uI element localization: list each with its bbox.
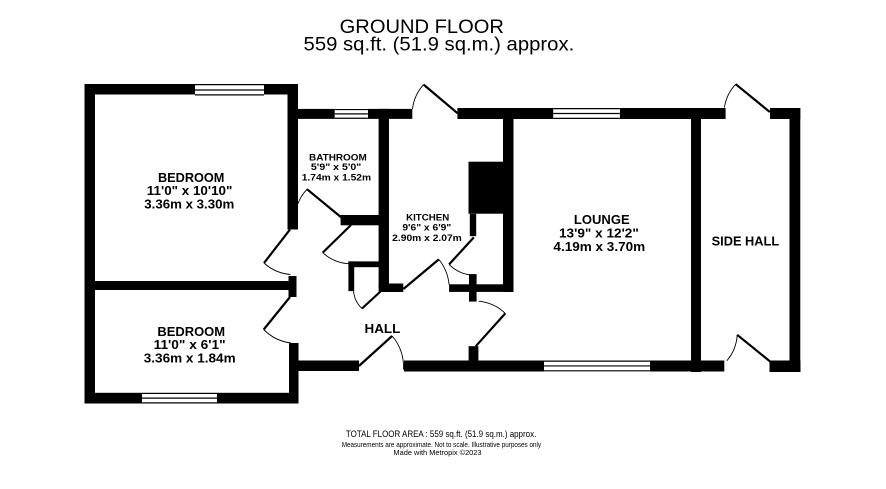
svg-text:1.74m x 1.52m: 1.74m x 1.52m bbox=[302, 173, 371, 184]
svg-text:4.19m x 3.70m: 4.19m x 3.70m bbox=[553, 239, 645, 254]
svg-text:SIDE HALL: SIDE HALL bbox=[712, 234, 780, 249]
svg-text:TOTAL FLOOR AREA : 559 sq.ft.: TOTAL FLOOR AREA : 559 sq.ft. (51.9 sq.m… bbox=[346, 429, 536, 439]
svg-text:5'9" x 5'0": 5'9" x 5'0" bbox=[311, 162, 361, 173]
svg-text:3.36m x 1.84m: 3.36m x 1.84m bbox=[144, 351, 236, 366]
svg-text:2.90m x 2.07m: 2.90m x 2.07m bbox=[392, 233, 462, 244]
svg-text:Made with Metropix ©2023: Made with Metropix ©2023 bbox=[393, 448, 481, 457]
svg-text:559 sq.ft. (51.9 sq.m.) approx: 559 sq.ft. (51.9 sq.m.) approx. bbox=[304, 35, 575, 56]
svg-text:3.36m x 3.30m: 3.36m x 3.30m bbox=[144, 197, 234, 212]
svg-text:9'6" x 6'9": 9'6" x 6'9" bbox=[402, 223, 451, 234]
svg-text:HALL: HALL bbox=[365, 321, 401, 336]
